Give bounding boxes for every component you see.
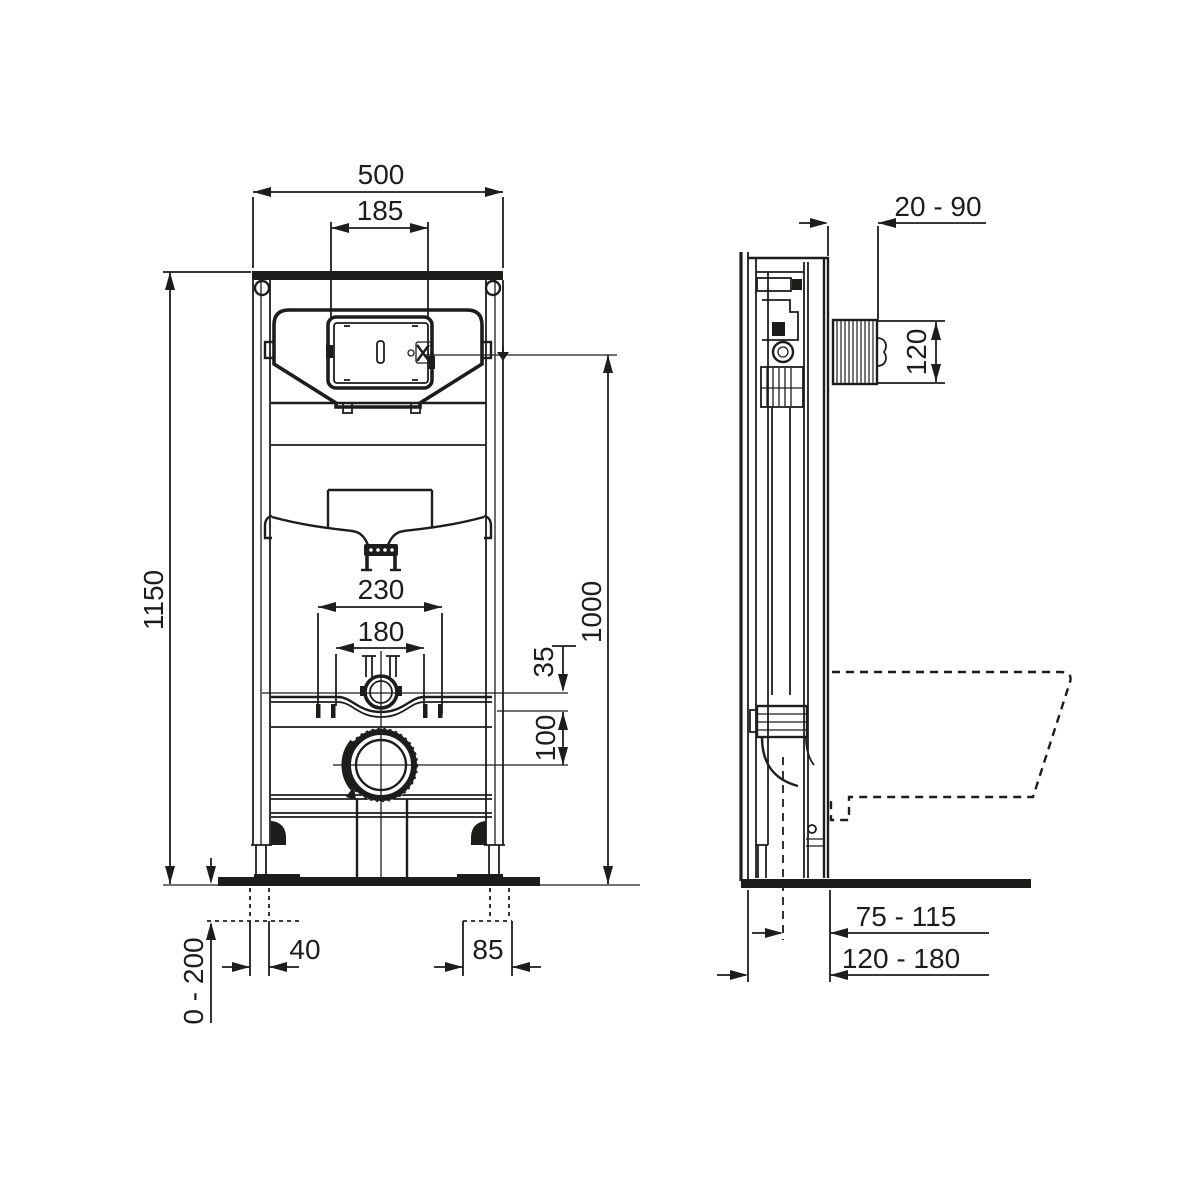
flush-bend-connector <box>361 544 401 570</box>
dim-label-plate-width: 185 <box>357 195 404 226</box>
installation-drawing-page: 500 185 1150 1000 <box>0 0 1200 1200</box>
mount-hole-right <box>486 281 500 295</box>
dim-label-panel-gap: 20 - 90 <box>894 191 981 222</box>
dim-label-frame-depth: 120 - 180 <box>842 943 960 974</box>
dim-label-drain-offset: 100 <box>530 715 561 762</box>
frame-top-bar <box>252 271 503 280</box>
dim-label-sleeve-height: 120 <box>901 329 932 376</box>
floor-side <box>741 879 1031 888</box>
dim-label-flush-height: 1000 <box>576 581 607 643</box>
dim-label-fixing-outer: 230 <box>358 574 405 605</box>
foot-bracket-left <box>271 821 286 845</box>
dim-label-fixing-inner: 180 <box>358 616 405 647</box>
wc-bowl-outline <box>831 672 1071 820</box>
front-dimensions: 500 185 1150 1000 <box>138 159 617 1025</box>
dim-label-leg-adjust: 0 - 200 <box>178 937 209 1024</box>
side-view: 20 - 90 120 75 - 115 120 - 180 <box>717 191 1071 982</box>
dim-label-front-width: 500 <box>358 159 405 190</box>
flush-sleeve <box>833 320 886 384</box>
dim-label-foot-offset: 40 <box>289 934 320 965</box>
level-marker <box>497 352 509 361</box>
cistern <box>265 310 491 570</box>
side-cistern <box>750 278 824 940</box>
dim-label-frame-height: 1150 <box>138 570 169 630</box>
foot-bracket-right <box>471 821 486 845</box>
base-plate <box>218 877 540 886</box>
dim-label-inlet-offset: 35 <box>528 646 559 677</box>
dim-label-foot-plate: 85 <box>472 934 503 965</box>
front-view: 500 185 1150 1000 <box>138 159 640 1025</box>
dim-label-drain-wall: 75 - 115 <box>856 901 957 932</box>
mount-hole-left <box>255 281 269 295</box>
installation-drawing: 500 185 1150 1000 <box>0 0 1200 1200</box>
